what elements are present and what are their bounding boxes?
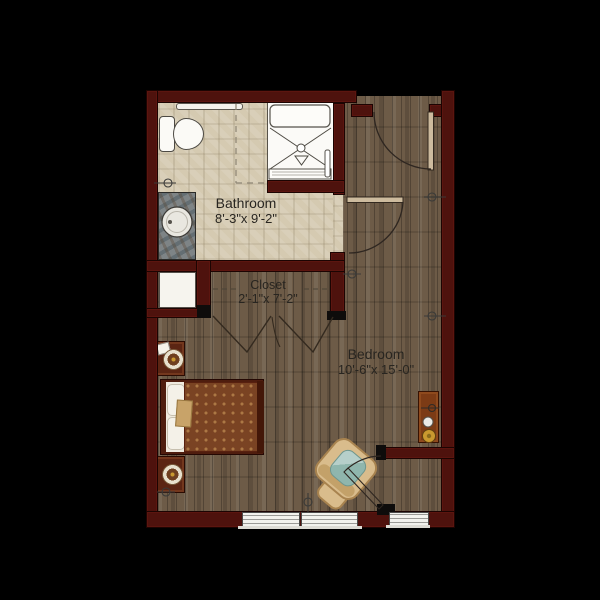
side-table (418, 391, 439, 443)
wall-cap (197, 305, 211, 318)
wall-cap (376, 445, 386, 460)
window-sill (238, 526, 362, 529)
closet-name: Closet (222, 278, 314, 292)
bed-blanket (184, 382, 258, 452)
wall-corner-partial (383, 447, 455, 459)
closet-dimensions: 2'-1"x 7'-2" (222, 292, 314, 306)
floor-plan: Bathroom 8'-3"x 9'-2" Closet 2'-1"x 7'-2… (0, 0, 600, 600)
bathroom-name: Bathroom (186, 196, 306, 212)
bedroom-name: Bedroom (330, 347, 422, 363)
bathroom-label: Bathroom 8'-3"x 9'-2" (186, 196, 306, 226)
wall-cap (327, 311, 346, 320)
table-lamp-lower (162, 464, 183, 485)
wall-top-bathroom (146, 90, 357, 103)
linen-cabinet (159, 272, 196, 308)
wall-top-bedroom-left (351, 104, 373, 117)
bedroom-dimensions: 10'-6"x 15'-0" (330, 363, 422, 378)
bed-footboard (257, 381, 264, 453)
window-sill (386, 525, 430, 528)
bathroom-dimensions: 8'-3"x 9'-2" (186, 212, 306, 227)
wall-shower (267, 180, 345, 193)
table-lamp-upper (163, 349, 184, 370)
closet-label: Closet 2'-1"x 7'-2" (222, 278, 314, 306)
bathroom-doorway-floor (333, 195, 343, 252)
towel-bar (176, 103, 243, 110)
bedroom-label: Bedroom 10'-6"x 15'-0" (330, 347, 422, 377)
folded-throw (175, 399, 193, 427)
wall-right (441, 90, 455, 528)
shower (267, 103, 334, 180)
wall-bathroom-closet-divider (146, 260, 345, 272)
